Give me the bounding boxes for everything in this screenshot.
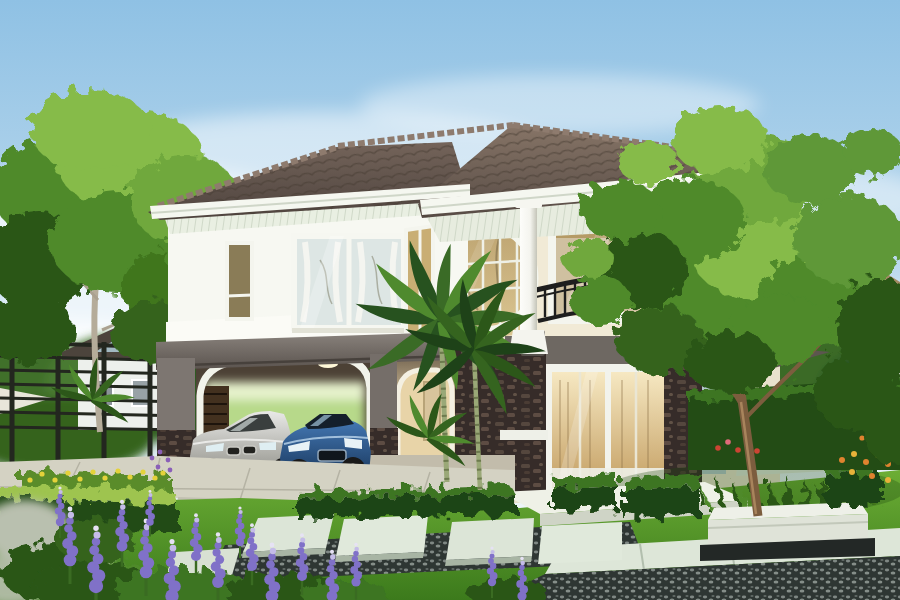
window-narrow [227, 243, 252, 319]
house-rendering: ⚜ ⚜ [0, 0, 900, 600]
rendering-canvas: ⚜ ⚜ [0, 0, 900, 600]
carport-pillar-mid [368, 354, 400, 470]
